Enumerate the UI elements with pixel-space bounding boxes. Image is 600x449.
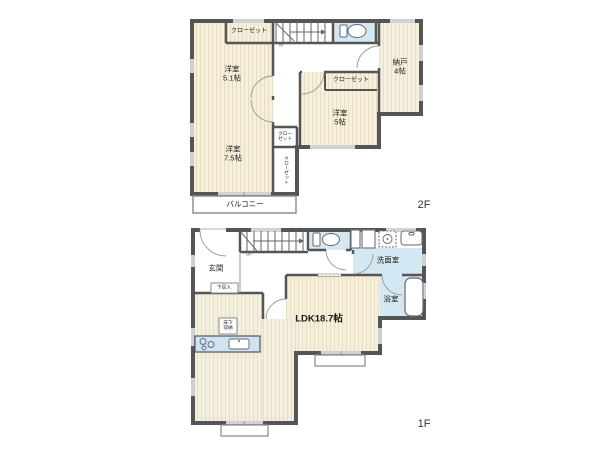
washroom-sink-icon [401, 231, 422, 245]
closet-mid-label: クローゼット [333, 78, 369, 85]
stairs-2f-icon [276, 21, 326, 43]
toilet-2f-floor [333, 21, 376, 43]
closet-vertical-label: クローゼット [282, 156, 288, 185]
closet-small-label: クロー ゼット [278, 132, 292, 142]
front-door-opening [200, 228, 226, 232]
room-nando-label: 納戸 4帖 [393, 58, 408, 75]
storage-cupboards [351, 230, 375, 248]
shoe-box-label: 下足入 [217, 286, 231, 291]
ldk-label: LDK18.7帖 [295, 315, 343, 326]
ldk-kitchen-floor [193, 293, 263, 423]
closet-line: ゼット [278, 137, 292, 142]
floor-2f-letter: 2F [418, 199, 431, 211]
genkan-label: 玄関 [209, 265, 224, 274]
underfloor-storage-label: 床下 収納 [223, 321, 232, 331]
closet-top-label: クローゼット [231, 29, 267, 36]
floor-plan-image: クローゼット 洋室 5.1帖 納戸 4帖 クローゼット 洋室 5帖 洋室 7.5… [0, 0, 600, 449]
room-size: 5.1帖 [223, 74, 241, 83]
room-youshitsu-5-label: 洋室 5帖 [333, 109, 348, 126]
room-size: 7.5帖 [224, 154, 242, 163]
stair-mark-2f: M [279, 44, 283, 49]
balcony-label: バルコニー [226, 201, 263, 210]
washing-machine-icon [379, 231, 396, 247]
toilet-1f-floor [310, 230, 351, 250]
room-size: 4帖 [393, 67, 408, 76]
room-youshitsu-5-1-label: 洋室 5.1帖 [223, 65, 241, 82]
room-youshitsu-7-5-label: 洋室 7.5帖 [224, 145, 242, 162]
ldk-lower-floor [263, 319, 298, 423]
bathroom-label: 浴室 [384, 296, 399, 305]
underfloor-line: 収納 [223, 326, 232, 331]
floor-1f-plan: 玄関 下足入 洗面室 浴室 LDK18.7帖 床下 収納 UP [191, 228, 426, 443]
floor-2f-plan: クローゼット 洋室 5.1帖 納戸 4帖 クローゼット 洋室 5帖 洋室 7.5… [190, 19, 423, 215]
stairs-1f-icon [240, 231, 304, 251]
room-size: 5帖 [333, 118, 348, 127]
stair-mark-1f: UP [246, 253, 252, 258]
washroom-label: 洗面室 [377, 257, 400, 266]
floor-1f-letter: 1F [418, 418, 431, 430]
